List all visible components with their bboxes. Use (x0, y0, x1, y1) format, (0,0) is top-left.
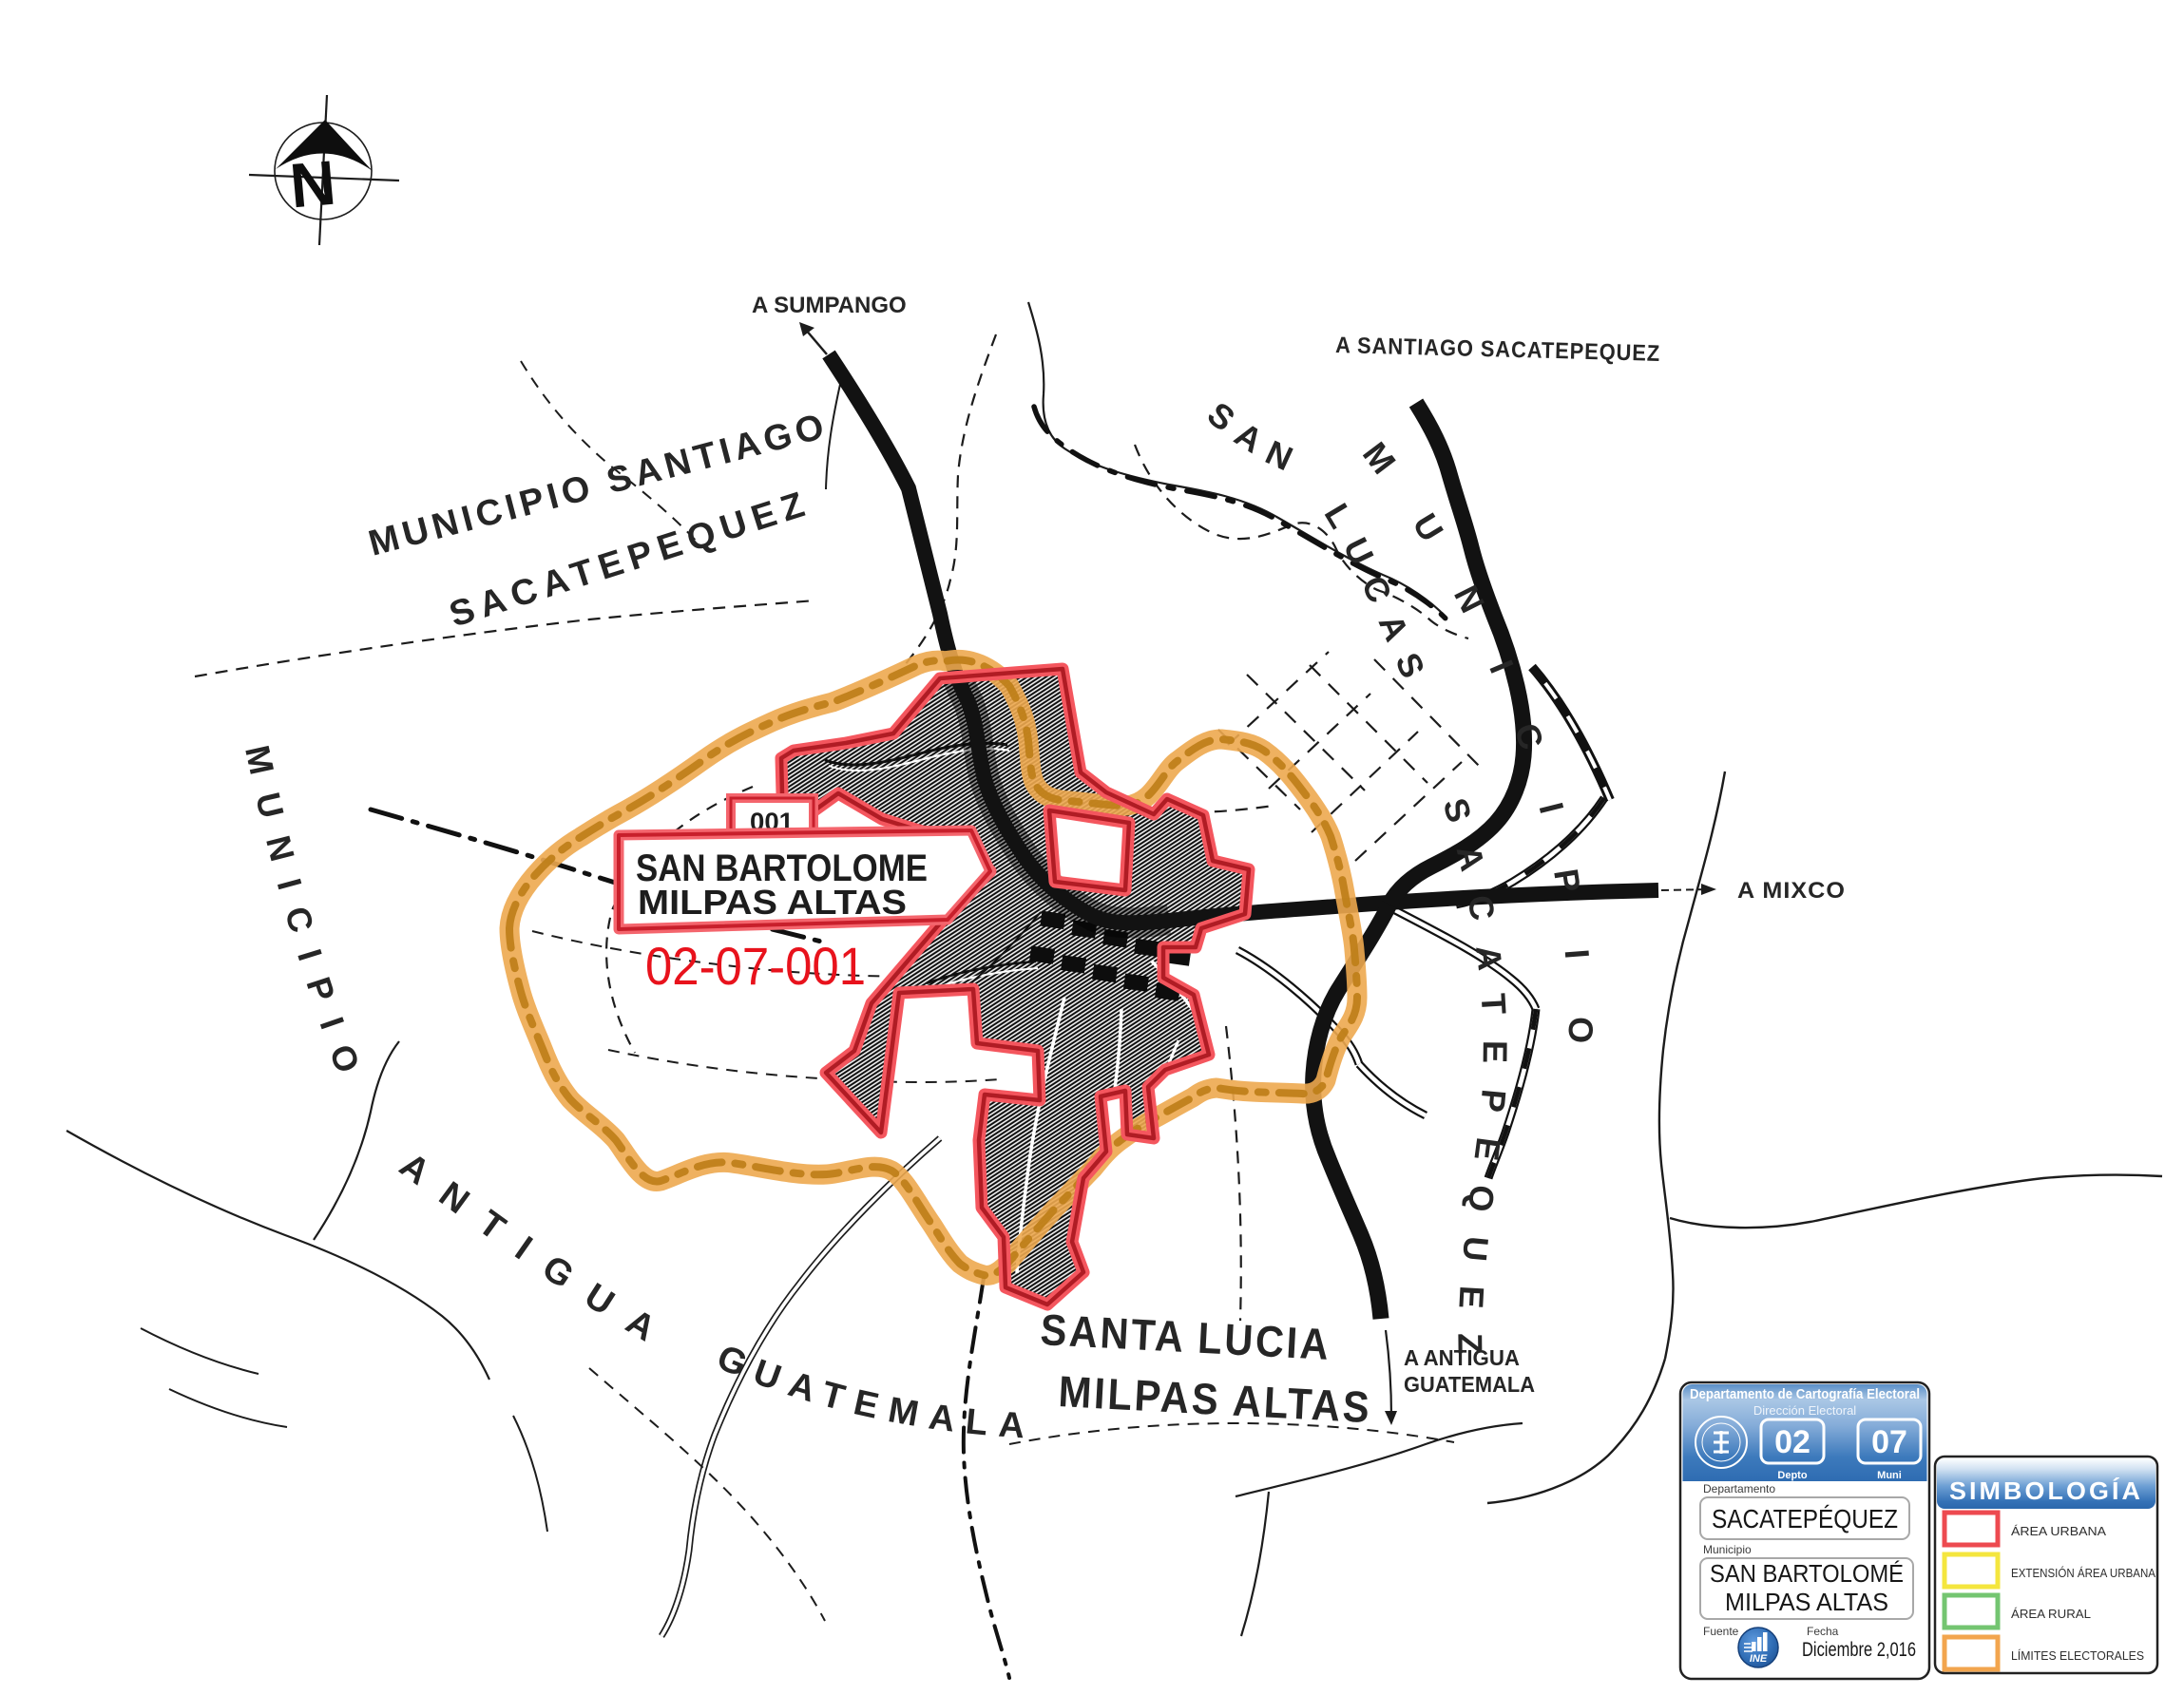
svg-text:SACATEPÉQUEZ: SACATEPÉQUEZ (1712, 1504, 1898, 1533)
svg-text:N: N (287, 147, 338, 221)
svg-text:ÁREA URBANA: ÁREA URBANA (2011, 1524, 2107, 1538)
svg-text:Depto: Depto (1777, 1470, 1807, 1481)
svg-text:INE: INE (1750, 1653, 1768, 1665)
svg-text:Municipio: Municipio (1703, 1543, 1752, 1556)
svg-text:SAN BARTOLOMÉ: SAN BARTOLOMÉ (1710, 1559, 1904, 1588)
svg-text:SIMBOLOGÍA: SIMBOLOGÍA (1949, 1476, 2143, 1505)
svg-text:Departamento de Cartografía El: Departamento de Cartografía Electoral (1690, 1387, 1920, 1402)
svg-text:A MIXCO: A MIXCO (1737, 878, 1846, 904)
svg-text:LÍMITES ELECTORALES: LÍMITES ELECTORALES (2011, 1648, 2144, 1663)
svg-text:ÁREA RURAL: ÁREA RURAL (2011, 1607, 2091, 1621)
svg-text:Diciembre 2,016: Diciembre 2,016 (1802, 1639, 1916, 1661)
svg-text:EXTENSIÓN ÁREA URBANA: EXTENSIÓN ÁREA URBANA (2011, 1566, 2156, 1580)
svg-text:MILPAS ALTAS: MILPAS ALTAS (1725, 1588, 1888, 1616)
svg-text:Departamento: Departamento (1703, 1482, 1775, 1495)
svg-text:07: 07 (1871, 1424, 1907, 1460)
svg-text:MILPAS ALTAS: MILPAS ALTAS (638, 883, 907, 922)
svg-text:Muni: Muni (1877, 1470, 1902, 1481)
svg-text:Fuente: Fuente (1703, 1625, 1739, 1638)
svg-text:Dirección Electoral: Dirección Electoral (1753, 1403, 1856, 1418)
svg-text:Fecha: Fecha (1807, 1625, 1839, 1638)
svg-text:02: 02 (1774, 1424, 1810, 1460)
svg-text:02-07-001: 02-07-001 (645, 936, 866, 996)
svg-text:A SUMPANGO: A SUMPANGO (752, 293, 907, 318)
